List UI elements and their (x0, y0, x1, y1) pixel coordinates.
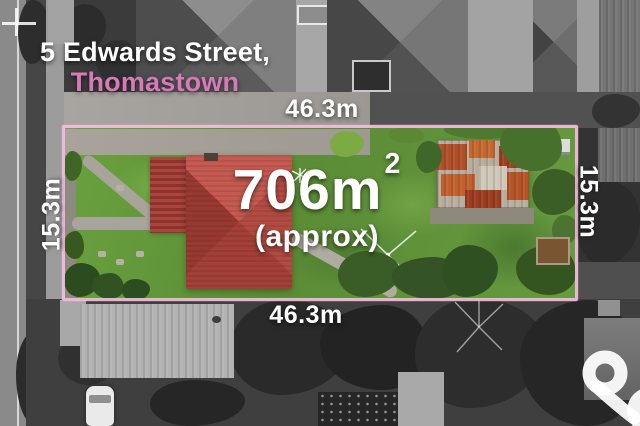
garage-door (352, 60, 391, 92)
shed-roof (598, 300, 620, 316)
house-roof (318, 392, 402, 426)
corrugated-roof (599, 0, 640, 100)
pergola (297, 5, 329, 25)
footpath (577, 0, 601, 94)
car (86, 386, 114, 426)
building-roof (533, 0, 579, 94)
aerial-photo: 5 Edwards Street, Thomastown 46.3m 46.3m… (0, 0, 640, 426)
corrugated-roof (598, 128, 640, 182)
ampersand-logo-icon (574, 350, 640, 426)
concrete-pad (398, 372, 444, 426)
neighbour-shed (578, 262, 640, 299)
roof-vent (212, 316, 221, 323)
building-roof (327, 0, 473, 94)
power-pole-icon (2, 22, 36, 25)
dimension-bottom: 46.3m (246, 301, 366, 330)
area-exponent: 2 (384, 148, 401, 180)
power-pole-icon (15, 8, 18, 36)
clothesline-icon (452, 298, 506, 356)
dimension-right: 15.3m (574, 160, 603, 244)
dimension-top: 46.3m (256, 95, 388, 124)
carport-roof (80, 304, 234, 378)
car-windshield (89, 395, 111, 403)
property-address: 5 Edwards Street, Thomastown (40, 38, 270, 97)
area-value: 706m2 (212, 162, 422, 219)
address-suburb: Thomastown (40, 68, 270, 98)
address-street: 5 Edwards Street, (40, 38, 270, 68)
area-qualifier: (approx) (212, 222, 422, 252)
dimension-left: 15.3m (38, 173, 67, 257)
courtyard (468, 0, 536, 94)
lot-area: 706m2 (approx) (212, 162, 422, 252)
